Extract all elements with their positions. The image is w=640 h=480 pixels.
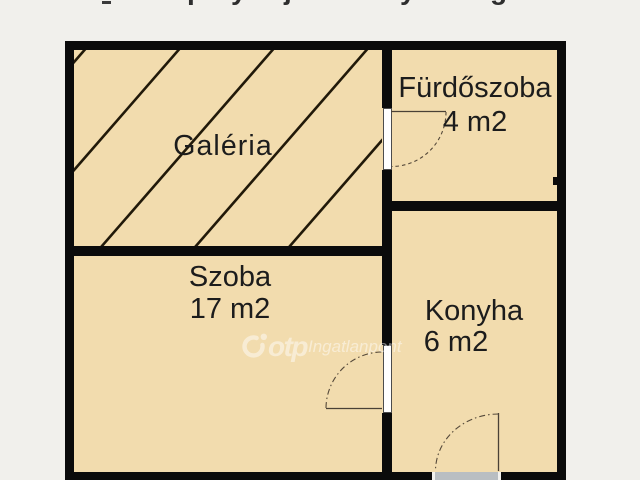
svg-text:otp: otp bbox=[268, 331, 308, 362]
svg-text:Ingatlanpont: Ingatlanpont bbox=[308, 337, 403, 356]
